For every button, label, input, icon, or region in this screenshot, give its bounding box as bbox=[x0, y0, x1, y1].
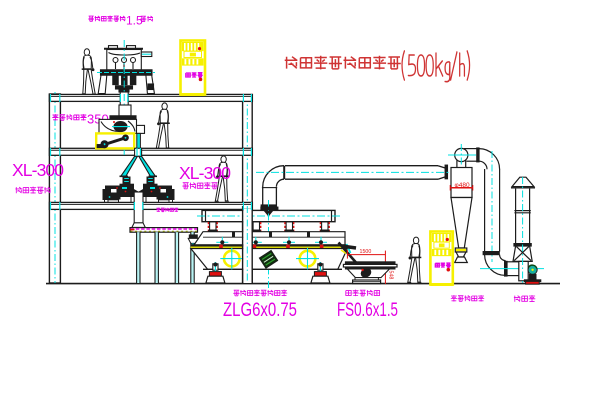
svg-text:XL-300: XL-300 bbox=[12, 160, 64, 180]
svg-text:548: 548 bbox=[388, 271, 394, 280]
svg-text:ZLG6x0.75: ZLG6x0.75 bbox=[223, 299, 297, 321]
svg-text:1.5: 1.5 bbox=[126, 14, 143, 28]
svg-text:φ480: φ480 bbox=[455, 182, 470, 189]
svg-text:FS0.6x1.5: FS0.6x1.5 bbox=[337, 299, 398, 321]
svg-text:1500: 1500 bbox=[360, 249, 372, 255]
svg-text:XL-300: XL-300 bbox=[179, 163, 231, 183]
